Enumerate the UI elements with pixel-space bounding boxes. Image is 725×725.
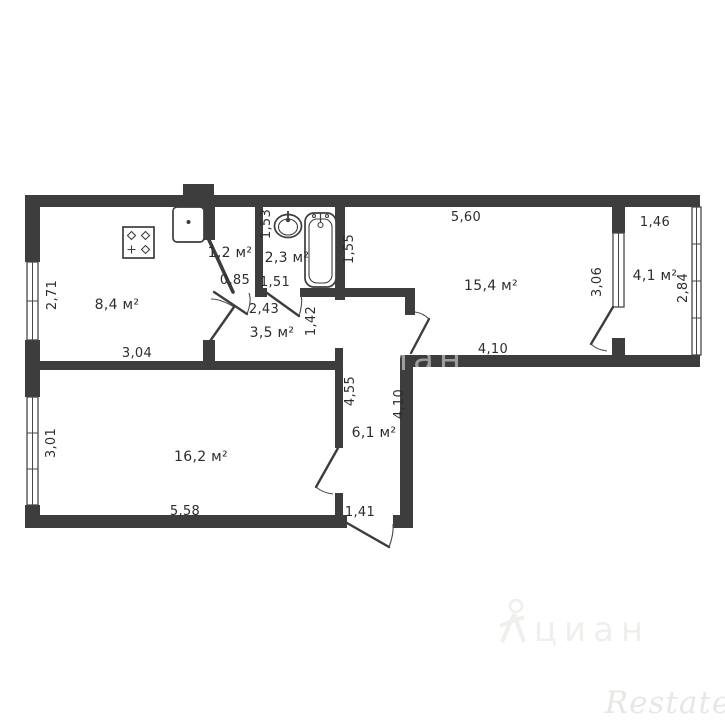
- hallway-area-label: 3,5 м²: [250, 325, 295, 341]
- kitchen-sink-icon: [173, 207, 204, 242]
- kitchen-height-dim: 2,71: [45, 280, 60, 310]
- kitchen-door: [208, 299, 234, 344]
- bedroom-area-label: 16,2 м²: [174, 449, 228, 465]
- balcony-glazing: [692, 207, 701, 355]
- wall-bath-bottom-right: [300, 288, 415, 297]
- restate-watermark: Restate: [604, 685, 725, 721]
- balcony-divider-window: [613, 233, 624, 307]
- kitchen-window: [27, 262, 38, 340]
- hallway-height-dim: 1,42: [304, 306, 319, 336]
- cian-watermark-bottom-text: циан: [534, 610, 650, 650]
- bathroom-area-label: 2,3 м²: [265, 250, 310, 266]
- bedroom-window: [27, 397, 38, 505]
- balcony-height-dim: 2,84: [676, 273, 691, 303]
- living-top-width-dim: 5,60: [451, 210, 481, 225]
- wall-top: [25, 195, 700, 207]
- storage-area-label: 1,2 м²: [208, 245, 253, 261]
- storage-width-dim: 0,85: [220, 273, 250, 288]
- wall-corridor-left-stub: [335, 493, 343, 525]
- cian-watermark-center: циан: [344, 331, 466, 379]
- wall-balcony-pillar-bottom: [612, 338, 625, 360]
- balcony-door: [591, 307, 613, 351]
- corridor-area-label: 6,1 м²: [352, 425, 397, 441]
- wall-balcony-pillar-top: [612, 207, 625, 233]
- wall-corridor-right: [400, 355, 413, 528]
- cian-watermark-center-text: циан: [358, 339, 466, 379]
- bedroom-height-dim: 3,01: [44, 428, 59, 458]
- living-right-height-dim: 3,06: [590, 267, 605, 297]
- wall-left-upper: [25, 195, 40, 262]
- corridor-left-height-dim: 4,55: [343, 376, 358, 406]
- bathtub-icon: [305, 213, 336, 287]
- kitchen-area-label: 8,4 м²: [95, 297, 140, 313]
- stove-icon: [123, 227, 154, 258]
- entrance-door: [347, 523, 393, 547]
- wall-mid-horizontal: [25, 361, 335, 370]
- wall-corridor-left-upper: [335, 348, 343, 448]
- corridor-right-height-dim: 4,10: [392, 389, 407, 419]
- floor-plan-page: 8,4 м² 2,71 3,04 1,2 м² 0,85 2,3 м² 1,53…: [0, 0, 725, 725]
- balcony-width-dim: 1,46: [640, 215, 670, 230]
- living-area-label: 15,4 м²: [464, 278, 518, 294]
- living-bottom-width-dim: 4,10: [478, 342, 508, 357]
- hallway-width-dim: 2,43: [249, 302, 279, 317]
- bathroom-height-dim: 1,53: [259, 209, 274, 239]
- living-left-height-dim: 1,55: [342, 234, 357, 264]
- corridor-width-dim: 1,41: [345, 505, 375, 520]
- washbasin-icon: [275, 211, 302, 238]
- balcony-area-label: 4,1 м²: [633, 268, 678, 284]
- floor-plan: 8,4 м² 2,71 3,04 1,2 м² 0,85 2,3 м² 1,53…: [0, 0, 725, 725]
- kitchen-width-dim: 3,04: [122, 346, 152, 361]
- bathroom-width-dim: 1,51: [260, 275, 290, 290]
- wall-living-door-niche: [405, 291, 415, 315]
- bedroom-door: [316, 448, 338, 494]
- cian-watermark-bottom: циан: [500, 600, 650, 650]
- bedroom-width-dim: 5,58: [170, 504, 200, 519]
